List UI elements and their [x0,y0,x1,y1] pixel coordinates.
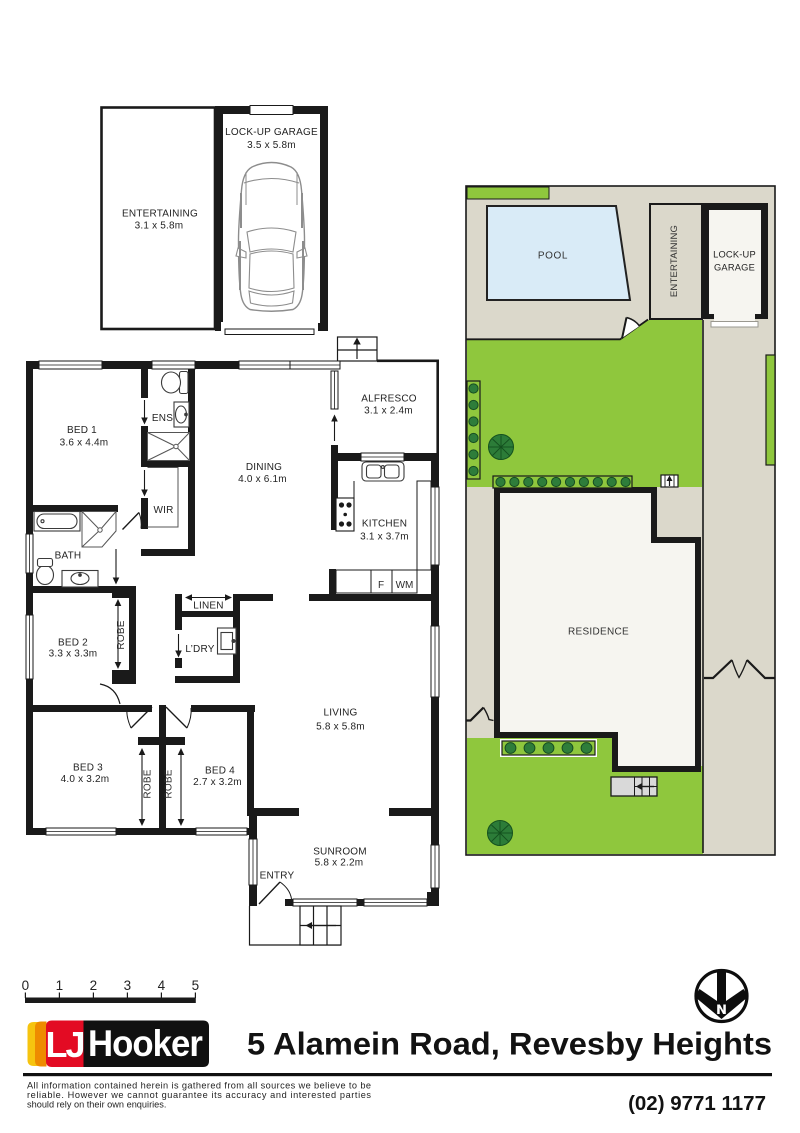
svg-text:ENTERTAINING: ENTERTAINING [669,225,680,297]
svg-text:LOCK-UP: LOCK-UP [713,250,756,260]
svg-text:(02) 9771 1177: (02) 9771 1177 [628,1092,766,1115]
svg-text:4: 4 [158,978,166,993]
svg-text:GARAGE: GARAGE [714,263,755,273]
svg-text:BED 2: BED 2 [58,638,88,649]
svg-text:3.1 x 2.4m: 3.1 x 2.4m [364,406,413,417]
svg-text:RESIDENCE: RESIDENCE [568,627,629,638]
svg-text:3: 3 [124,978,132,993]
svg-text:ROBE: ROBE [143,769,154,798]
svg-text:All information contained here: All information contained herein is gath… [27,1081,371,1091]
svg-text:3.6 x 4.4m: 3.6 x 4.4m [60,438,109,449]
svg-text:3.5 x 5.8m: 3.5 x 5.8m [247,140,296,151]
svg-text:WM: WM [396,580,414,591]
svg-text:ROBE: ROBE [164,769,175,798]
svg-text:should rely on their own enqui: should rely on their own enquiries. [27,1100,166,1110]
svg-text:BED 1: BED 1 [67,425,97,436]
svg-text:ENS: ENS [152,413,173,424]
svg-text:F: F [378,580,384,591]
svg-text:BATH: BATH [55,551,82,562]
svg-text:3.1 x 5.8m: 3.1 x 5.8m [135,221,184,232]
svg-text:BED 3: BED 3 [73,763,103,774]
svg-text:3.3 x 3.3m: 3.3 x 3.3m [49,649,98,660]
svg-text:LJ: LJ [45,1024,83,1065]
svg-text:2: 2 [90,978,98,993]
svg-text:WIR: WIR [153,505,173,516]
svg-text:LINEN: LINEN [193,601,223,612]
svg-text:ENTERTAINING: ENTERTAINING [122,209,198,220]
svg-text:4.0 x 6.1m: 4.0 x 6.1m [238,474,287,485]
svg-text:LIVING: LIVING [324,708,358,719]
svg-text:4.0 x 3.2m: 4.0 x 3.2m [61,774,110,785]
svg-text:DINING: DINING [246,462,282,473]
svg-text:5 Alamein Road, Revesby Height: 5 Alamein Road, Revesby Heights [247,1026,772,1062]
svg-text:ROBE: ROBE [116,620,127,649]
svg-text:3.1 x 3.7m: 3.1 x 3.7m [360,532,409,543]
svg-text:0: 0 [22,978,30,993]
svg-text:5.8 x 5.8m: 5.8 x 5.8m [316,722,365,733]
svg-text:ENTRY: ENTRY [260,871,295,882]
svg-text:2.7 x 3.2m: 2.7 x 3.2m [193,777,242,788]
svg-text:BED 4: BED 4 [205,766,235,777]
svg-text:1: 1 [56,978,64,993]
svg-text:L’DRY: L’DRY [185,644,214,655]
svg-text:POOL: POOL [538,251,568,262]
svg-text:Hooker: Hooker [88,1023,203,1064]
svg-text:5.8 x 2.2m: 5.8 x 2.2m [315,858,364,869]
svg-text:ALFRESCO: ALFRESCO [361,394,417,405]
svg-text:LOCK-UP GARAGE: LOCK-UP GARAGE [225,127,318,138]
svg-text:5: 5 [192,978,200,993]
svg-text:reliable. However we cannot gu: reliable. However we cannot guarantee it… [27,1090,371,1100]
svg-text:KITCHEN: KITCHEN [362,519,407,530]
svg-text:SUNROOM: SUNROOM [313,847,367,858]
